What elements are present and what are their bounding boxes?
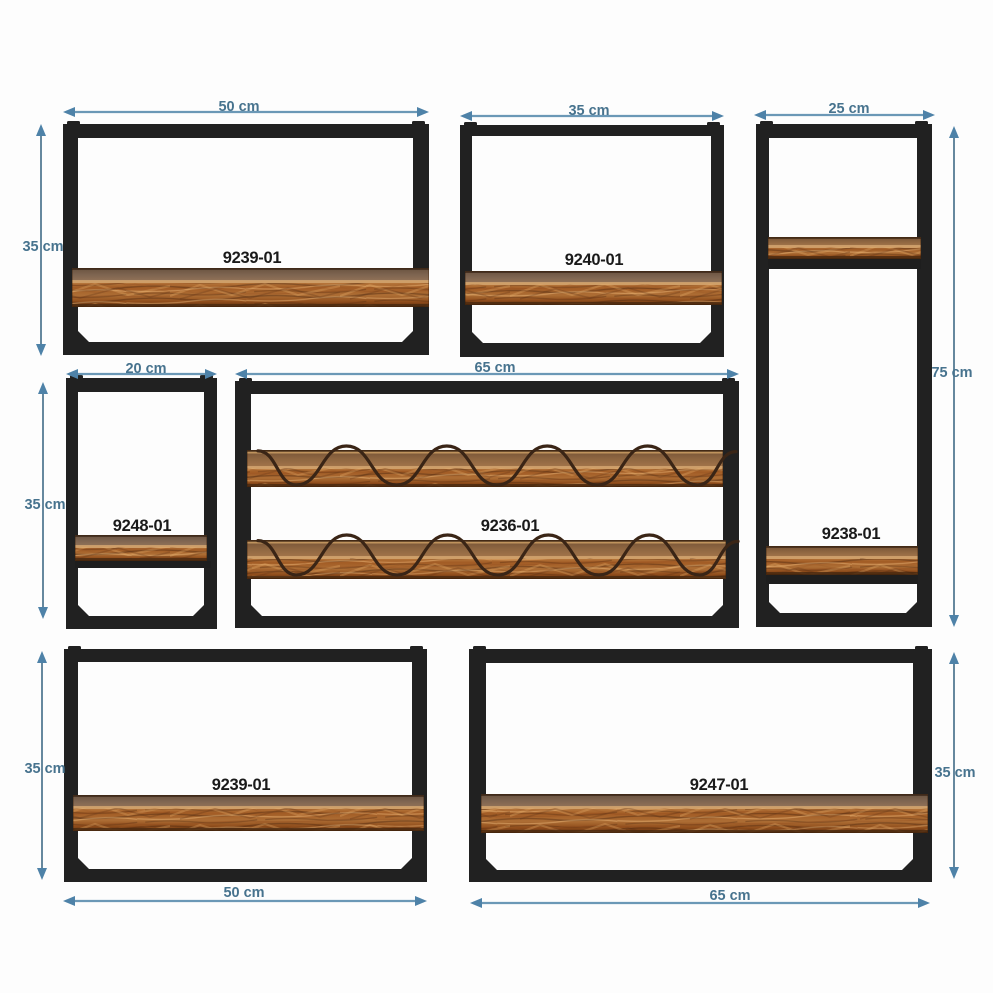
svg-text:20 cm: 20 cm (125, 361, 166, 377)
svg-text:9238-01: 9238-01 (822, 525, 881, 543)
svg-text:9248-01: 9248-01 (113, 517, 172, 535)
svg-text:9239-01: 9239-01 (223, 249, 282, 267)
svg-text:25 cm: 25 cm (828, 101, 869, 117)
svg-text:35 cm: 35 cm (24, 497, 65, 513)
svg-text:9240-01: 9240-01 (565, 251, 624, 269)
svg-text:50 cm: 50 cm (218, 99, 259, 115)
svg-text:9239-01: 9239-01 (212, 776, 271, 794)
svg-text:65 cm: 65 cm (474, 360, 515, 376)
svg-text:65 cm: 65 cm (709, 888, 750, 904)
svg-text:35 cm: 35 cm (24, 761, 65, 777)
svg-text:50 cm: 50 cm (223, 885, 264, 901)
svg-text:75 cm: 75 cm (931, 365, 972, 381)
svg-text:9247-01: 9247-01 (690, 776, 749, 794)
svg-text:35 cm: 35 cm (22, 239, 63, 255)
svg-text:9236-01: 9236-01 (481, 517, 540, 535)
svg-text:35 cm: 35 cm (934, 765, 975, 781)
svg-text:35 cm: 35 cm (568, 103, 609, 119)
